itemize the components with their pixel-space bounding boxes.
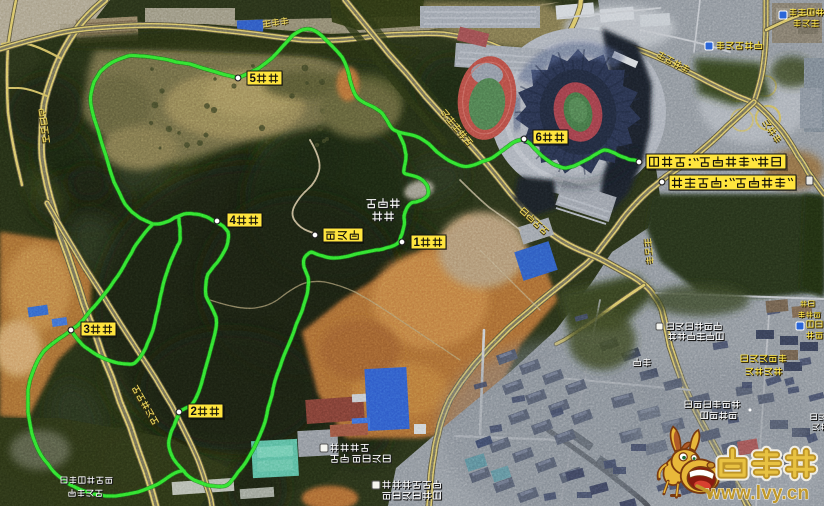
svg-text:6: 6	[536, 132, 542, 144]
svg-text:1: 1	[414, 237, 421, 249]
svg-text:2: 2	[191, 406, 197, 418]
svg-text:3: 3	[84, 324, 90, 336]
svg-text:5: 5	[250, 73, 257, 85]
svg-text:4: 4	[230, 215, 237, 227]
svg-text:www.lvy.cn: www.lvy.cn	[705, 483, 809, 504]
